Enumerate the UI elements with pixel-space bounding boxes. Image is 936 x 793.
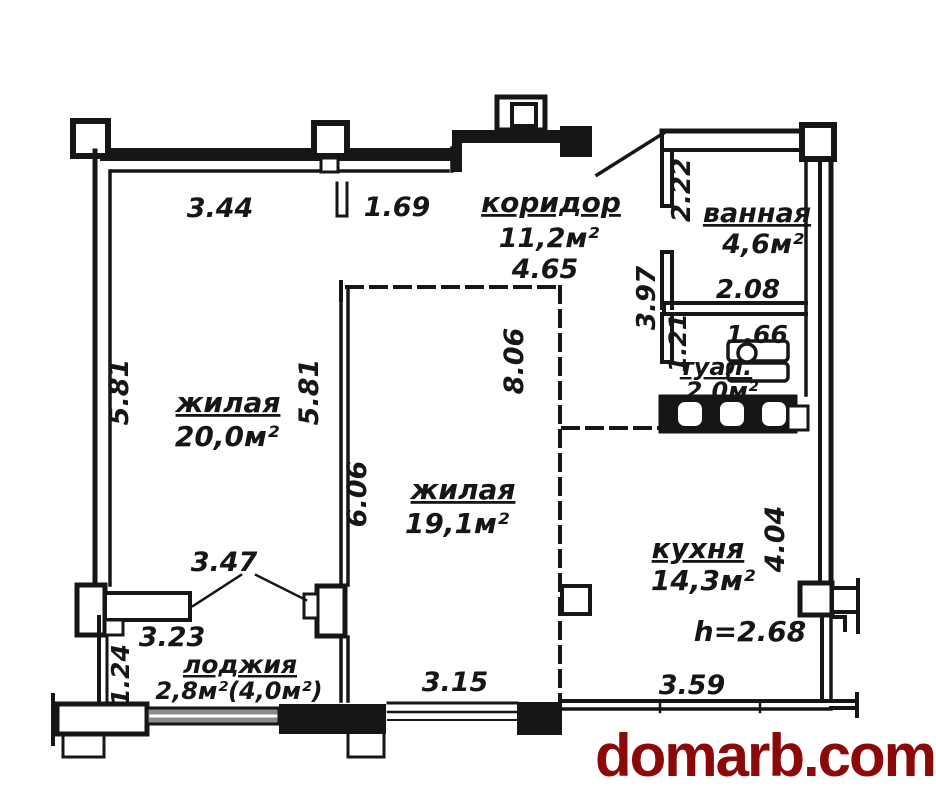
column-top-left <box>73 121 108 156</box>
room-label-corridor: коридор <box>481 186 621 219</box>
dim-loggia-width: 3.23 <box>139 622 206 653</box>
room-area-bathroom: 4,6м² <box>721 229 804 260</box>
room-label-living-large: жилая <box>174 386 281 419</box>
wall-stub-top <box>337 183 347 216</box>
room-label-bathroom: ванная <box>703 198 811 229</box>
balcony-parapet-left <box>57 704 147 734</box>
entry-door-swing <box>597 131 667 175</box>
dim-living-mid-left: 6.06 <box>342 461 373 528</box>
dim-top-wall-right: 1.69 <box>364 192 431 223</box>
dim-living-mid-bottom: 3.15 <box>422 667 489 698</box>
dim-bathroom-entry-side: 2.22 <box>667 158 697 222</box>
dim-kitchen-bottom: 3.59 <box>659 670 726 701</box>
loggia-window <box>147 708 279 724</box>
bottom-right-wall-end <box>831 694 857 716</box>
leader-lines-balcony-opening <box>193 575 306 606</box>
room-area-corridor: 11,2м² <box>499 223 600 254</box>
dim-kitchen-side: 4.04 <box>760 506 791 574</box>
column-loggia-right <box>304 586 345 636</box>
room-area-kitchen: 14,3м² <box>651 564 756 597</box>
wall-block-entry <box>560 126 592 157</box>
floor-plan-svg: 3.44 1.69 коридор 11,2м² 4.65 2.22 ванна… <box>0 0 936 793</box>
dim-living-mid-right: 8.06 <box>499 328 530 395</box>
dim-toilet-width: 1.66 <box>726 320 788 349</box>
dim-balcony-opening: 3.47 <box>191 547 258 578</box>
room-label-living-mid: жилая <box>409 473 516 506</box>
room-area-toilet: 2,0м² <box>686 377 759 405</box>
room-area-loggia: 2,8м²(4,0м²) <box>155 677 322 705</box>
wall-stubs-below-plan <box>63 734 384 757</box>
dim-corridor-length: 4.65 <box>511 254 579 285</box>
column-kitchen-right <box>800 583 832 615</box>
dim-loggia-depth: 1.24 <box>106 644 135 706</box>
column-on-dashed-line <box>562 586 590 614</box>
dim-living-large-right: 5.81 <box>294 359 325 426</box>
right-wall <box>806 159 831 701</box>
bathroom-top-wall <box>662 131 806 150</box>
room-area-living-large: 20,0м² <box>175 420 280 453</box>
living-mid-window <box>388 703 517 720</box>
dim-bathroom-width: 2.08 <box>716 275 780 305</box>
kitchen-bottom-wall <box>563 701 831 712</box>
room-label-kitchen: кухня <box>652 532 745 565</box>
room-label-loggia: лоджия <box>183 650 297 679</box>
right-wall-flange <box>832 580 858 632</box>
dim-living-large-left: 5.81 <box>104 359 135 426</box>
vent-shaft <box>497 97 545 130</box>
column-top-mid <box>314 123 347 172</box>
column-top-right <box>802 125 834 159</box>
watermark-text: domarb.com <box>595 722 935 789</box>
dim-top-wall-left: 3.44 <box>187 193 254 224</box>
floor-plan-page: 3.44 1.69 коридор 11,2м² 4.65 2.22 ванна… <box>0 0 936 793</box>
dim-ceiling-height: h=2.68 <box>694 615 806 648</box>
wall-box-right-of-hatch <box>788 406 808 430</box>
dim-corridor-right-side: 3.97 <box>632 265 662 330</box>
wall-pier-bottom-mid-left <box>279 704 386 734</box>
wall-pier-bottom-mid-right <box>517 702 562 735</box>
walls <box>53 97 858 757</box>
room-area-living-mid: 19,1м² <box>405 507 510 540</box>
